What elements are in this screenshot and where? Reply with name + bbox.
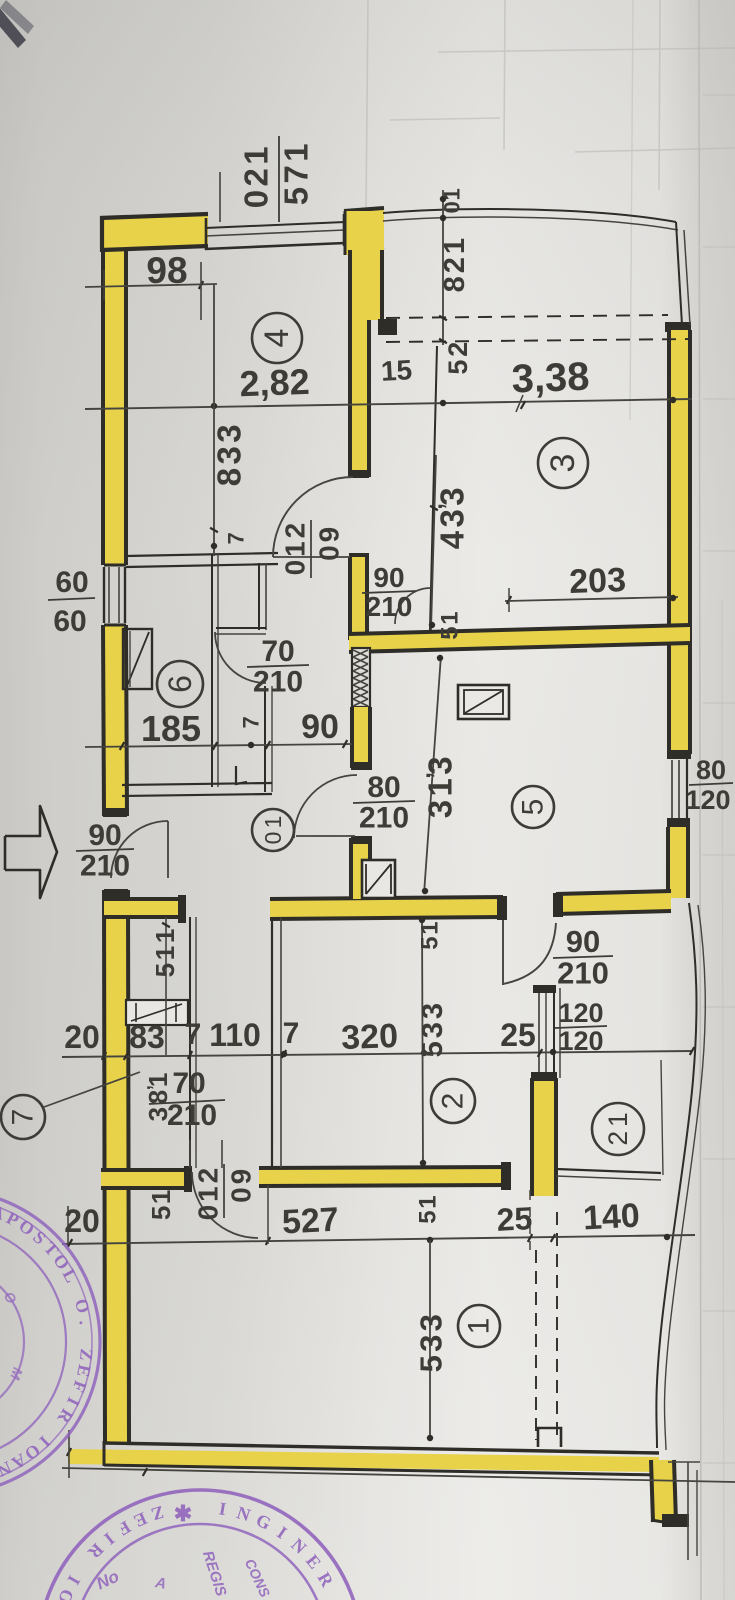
svg-text:0: 0	[260, 832, 286, 845]
svg-text:2: 2	[439, 257, 471, 273]
svg-text:3: 3	[434, 509, 471, 527]
svg-text:5: 5	[415, 1210, 442, 1223]
svg-text:2: 2	[238, 168, 275, 186]
svg-text:60: 60	[55, 566, 88, 599]
svg-text:90: 90	[88, 819, 121, 852]
svg-text:25: 25	[500, 1017, 536, 1053]
svg-text:3: 3	[211, 446, 248, 464]
svg-text:80: 80	[367, 771, 400, 804]
svg-text:210: 210	[359, 802, 409, 835]
svg-text:2: 2	[603, 1131, 633, 1146]
svg-text:3: 3	[417, 1022, 449, 1038]
svg-text:1: 1	[193, 1186, 224, 1202]
svg-text:4: 4	[434, 530, 471, 549]
svg-text:110: 110	[209, 1017, 261, 1053]
svg-text:210: 210	[167, 1099, 217, 1132]
svg-text:3: 3	[544, 454, 582, 473]
svg-text:5: 5	[150, 963, 180, 977]
svg-text:5: 5	[417, 936, 444, 949]
svg-text:1: 1	[278, 143, 315, 161]
svg-text:2: 2	[280, 523, 311, 539]
svg-text:140: 140	[582, 1197, 641, 1238]
svg-text:1: 1	[260, 816, 286, 829]
svg-text:120: 120	[558, 998, 603, 1028]
svg-text:2: 2	[437, 1093, 470, 1110]
svg-text:3: 3	[414, 1335, 449, 1352]
svg-text:3: 3	[211, 424, 248, 442]
svg-text:60: 60	[53, 605, 86, 638]
svg-text:210: 210	[253, 666, 303, 699]
svg-text:7: 7	[185, 1018, 202, 1051]
svg-text:20: 20	[64, 1203, 100, 1239]
svg-text:5: 5	[437, 626, 464, 639]
svg-text:90: 90	[566, 924, 600, 959]
svg-text:25: 25	[496, 1200, 533, 1238]
svg-text:7: 7	[239, 716, 264, 728]
svg-text:3: 3	[417, 1003, 449, 1019]
svg-text:0: 0	[440, 201, 465, 213]
svg-text:1: 1	[150, 929, 180, 943]
svg-text:80: 80	[696, 755, 726, 785]
svg-text:1: 1	[463, 1318, 496, 1335]
svg-text:120: 120	[685, 785, 730, 815]
svg-text:185: 185	[141, 708, 201, 749]
svg-text:3: 3	[143, 1107, 173, 1121]
svg-text:1: 1	[422, 778, 459, 796]
svg-text:1: 1	[146, 1190, 176, 1204]
svg-text:120: 120	[558, 1026, 603, 1056]
svg-text:90: 90	[373, 562, 404, 593]
svg-text:2: 2	[443, 342, 473, 357]
svg-text:210: 210	[366, 591, 413, 622]
svg-text:8: 8	[143, 1090, 173, 1104]
svg-text:1: 1	[439, 238, 471, 254]
svg-text:320: 320	[341, 1017, 399, 1057]
svg-text:0: 0	[314, 545, 345, 561]
svg-text:1: 1	[437, 611, 464, 624]
svg-text:Z: Z	[76, 1348, 97, 1362]
svg-text:2: 2	[193, 1168, 224, 1184]
svg-text:3,38: 3,38	[511, 355, 590, 402]
svg-text:0: 0	[238, 190, 275, 208]
svg-text:70: 70	[172, 1067, 205, 1100]
svg-text:6: 6	[162, 675, 198, 693]
svg-text:70: 70	[261, 635, 294, 668]
svg-text:7: 7	[283, 1017, 300, 1050]
svg-text:9: 9	[314, 527, 345, 543]
svg-text:83: 83	[129, 1019, 165, 1055]
svg-text:1: 1	[150, 946, 180, 960]
svg-text:5: 5	[146, 1206, 176, 1220]
svg-text:3: 3	[414, 1314, 449, 1331]
svg-text:0: 0	[280, 560, 311, 576]
svg-text:7: 7	[7, 1109, 40, 1126]
svg-text:1: 1	[417, 921, 444, 934]
svg-text:20: 20	[64, 1019, 100, 1055]
svg-text:5: 5	[517, 799, 550, 816]
svg-text:3: 3	[422, 800, 459, 818]
svg-text:5: 5	[414, 1355, 449, 1372]
svg-text:4: 4	[258, 329, 296, 348]
svg-text:210: 210	[80, 850, 130, 883]
svg-text:7: 7	[278, 165, 315, 183]
svg-text:5: 5	[417, 1041, 449, 1057]
svg-text:1: 1	[440, 188, 465, 200]
svg-text:1: 1	[415, 1195, 442, 1208]
svg-text:0: 0	[193, 1205, 224, 1221]
svg-text:15: 15	[380, 354, 413, 387]
svg-text:90: 90	[301, 708, 339, 746]
svg-text:1: 1	[238, 146, 275, 164]
svg-text:1: 1	[603, 1112, 633, 1127]
svg-text:9: 9	[226, 1169, 257, 1185]
svg-text:98: 98	[146, 250, 187, 291]
svg-text:7: 7	[224, 532, 249, 544]
svg-text:0: 0	[226, 1187, 257, 1203]
svg-text:203: 203	[569, 561, 627, 601]
svg-text:2,82: 2,82	[239, 361, 310, 404]
svg-text:✱: ✱	[174, 1501, 192, 1526]
svg-text:8: 8	[439, 276, 471, 292]
svg-text:8: 8	[211, 468, 248, 486]
svg-text:210: 210	[557, 955, 609, 990]
svg-text:5: 5	[278, 187, 315, 205]
svg-text:1: 1	[280, 541, 311, 557]
svg-text:5: 5	[443, 360, 473, 375]
svg-text:527: 527	[281, 1201, 340, 1242]
